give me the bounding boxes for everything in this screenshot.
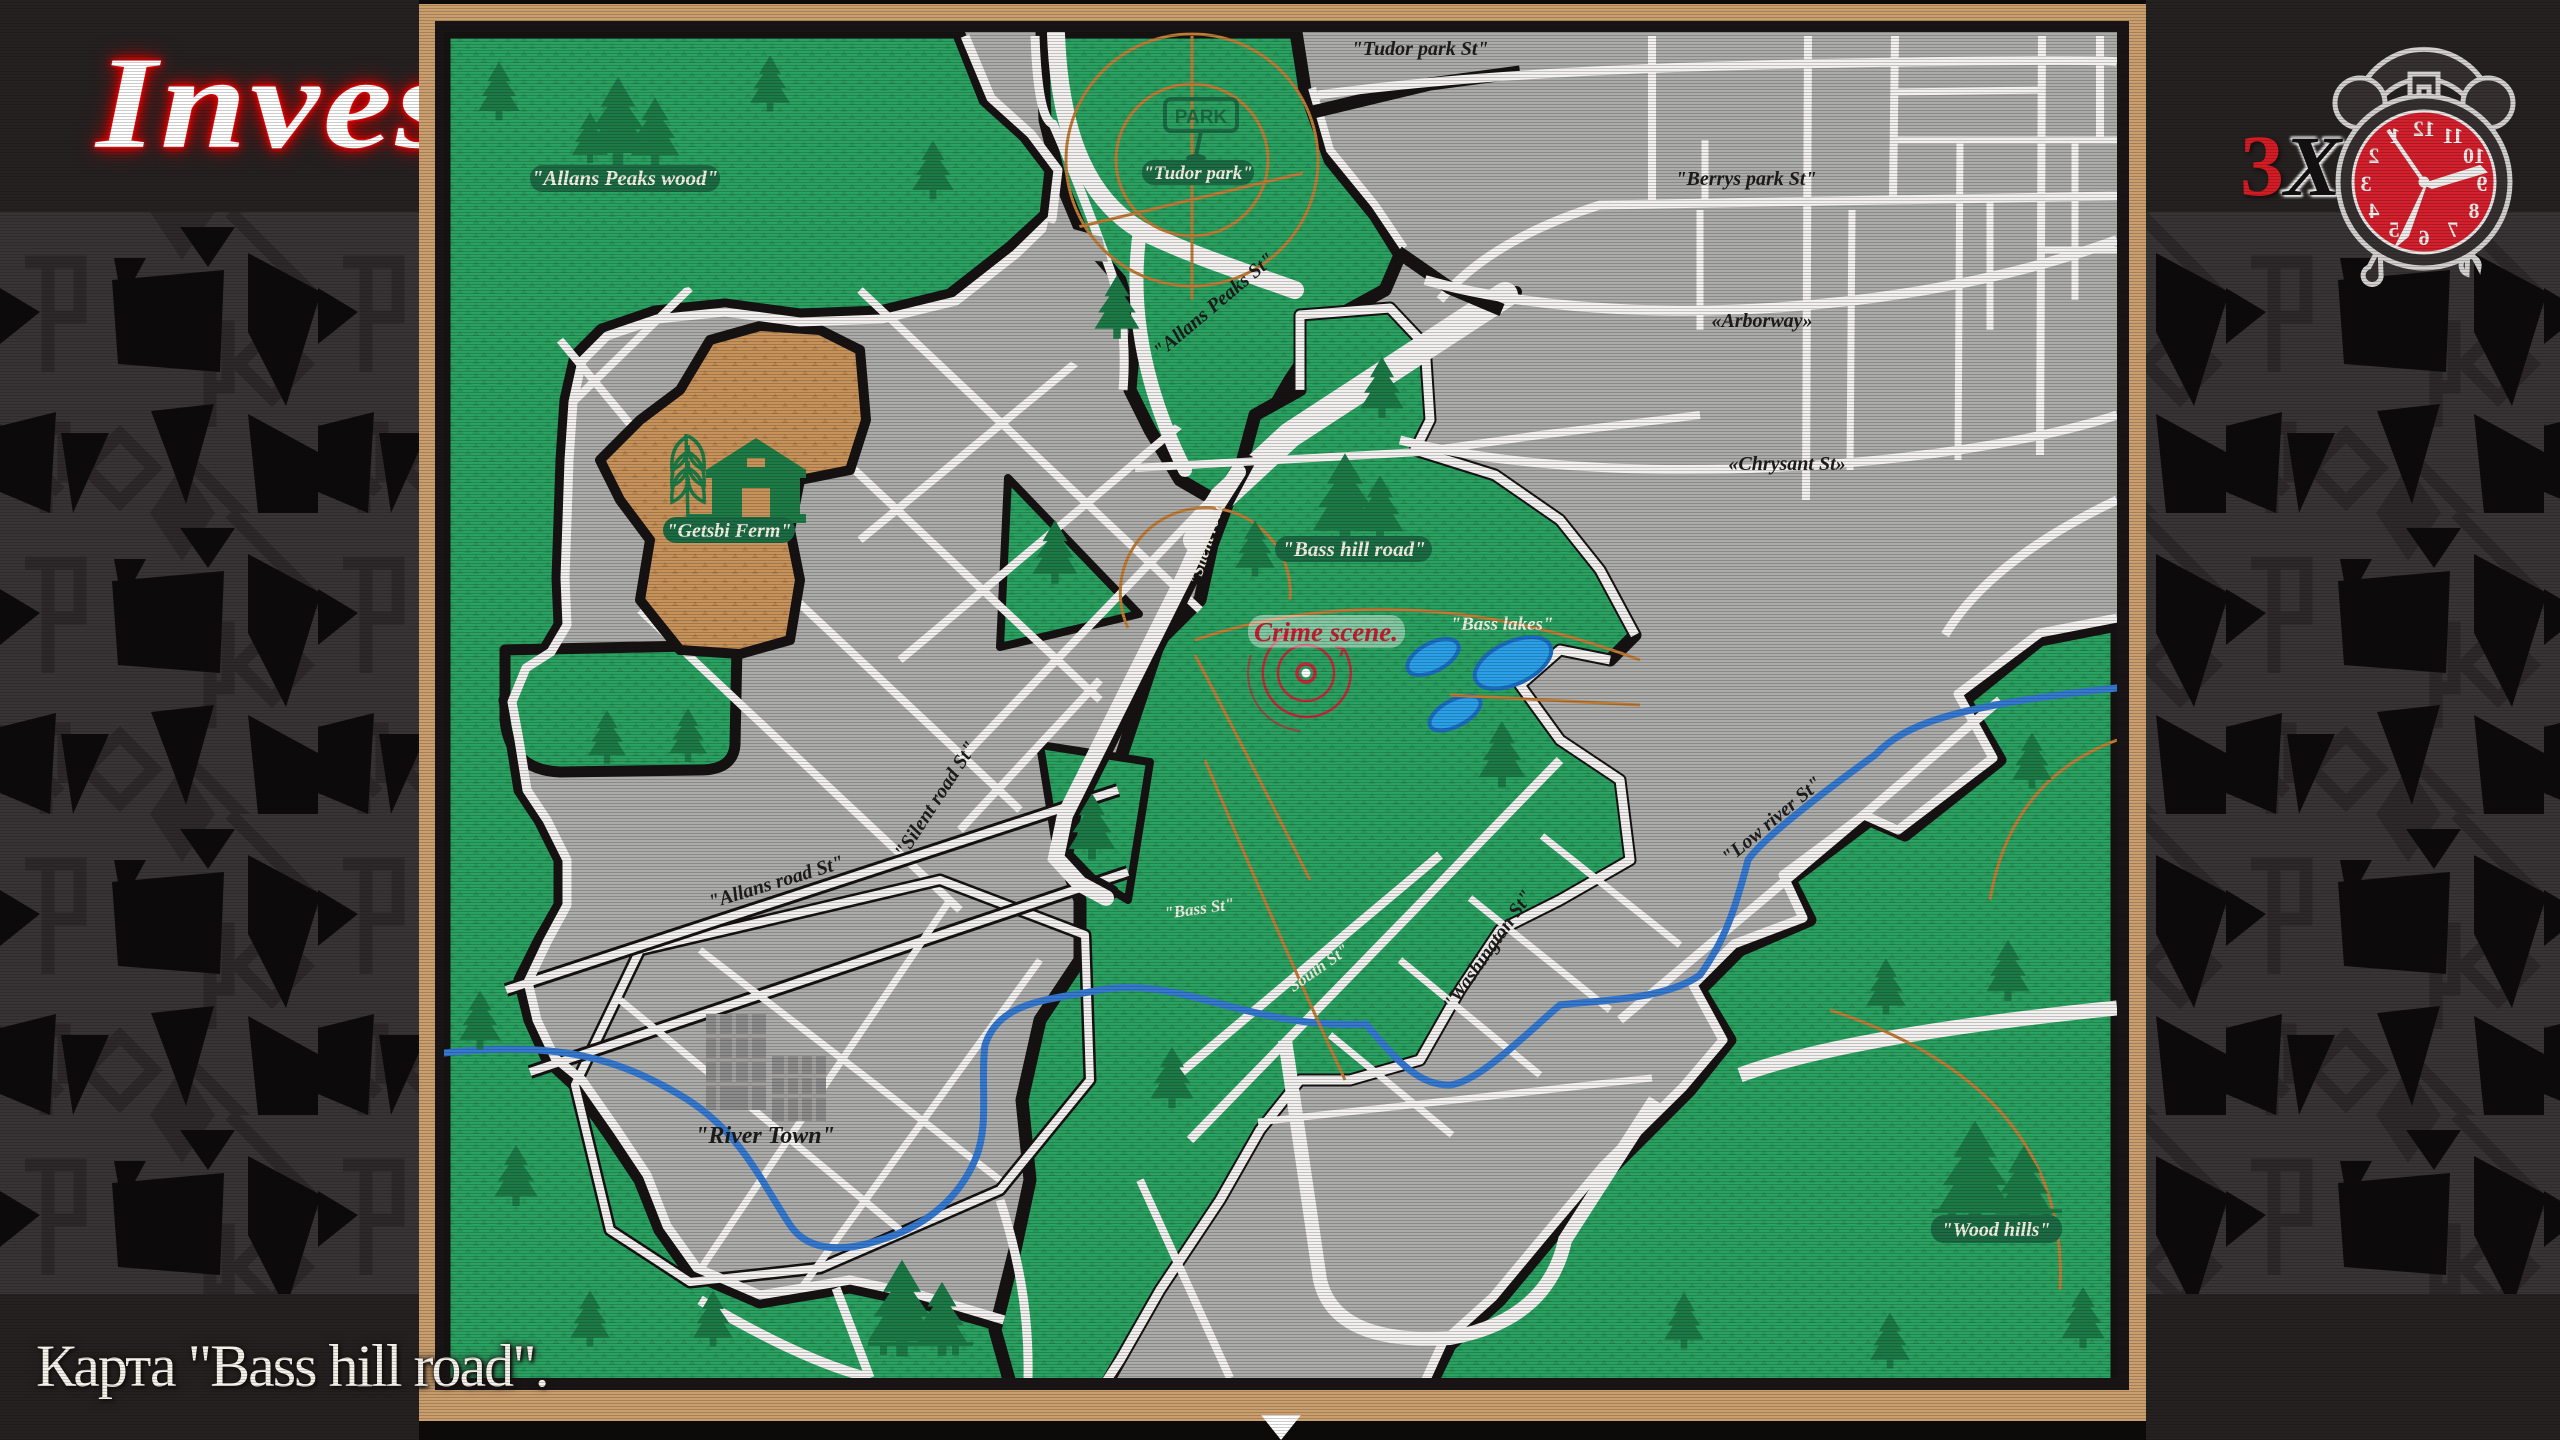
svg-text:"River Town": "River Town" <box>695 1123 835 1149</box>
svg-text:«Chrysant St»: «Chrysant St» <box>1728 453 1845 475</box>
svg-text:6: 6 <box>2419 225 2430 250</box>
svg-text:4: 4 <box>2369 198 2380 223</box>
svg-text:12: 12 <box>2413 116 2435 141</box>
svg-text:10: 10 <box>2463 143 2485 168</box>
svg-text:2: 2 <box>2369 143 2380 168</box>
svg-text:"Allans Peaks wood": "Allans Peaks wood" <box>532 166 719 190</box>
svg-text:11: 11 <box>2443 123 2464 148</box>
svg-text:"Bass hill road": "Bass hill road" <box>1282 537 1426 561</box>
svg-text:3: 3 <box>2361 171 2372 196</box>
svg-text:Crime scene.: Crime scene. <box>1254 617 1398 647</box>
svg-text:«Arborway»: «Arborway» <box>1711 310 1812 332</box>
svg-text:"Tudor park": "Tudor park" <box>1143 163 1253 184</box>
svg-text:7: 7 <box>2448 217 2459 242</box>
svg-text:"Wood hills": "Wood hills" <box>1941 1219 2050 1241</box>
svg-text:"Tudor park St": "Tudor park St" <box>1351 38 1488 60</box>
svg-text:"Berrys park St": "Berrys park St" <box>1675 168 1816 190</box>
svg-text:PARK: PARK <box>1175 107 1228 128</box>
svg-text:"Bass lakes": "Bass lakes" <box>1451 614 1554 635</box>
svg-text:5: 5 <box>2389 217 2400 242</box>
svg-text:8: 8 <box>2469 198 2480 223</box>
svg-text:"Getsbi Ferm": "Getsbi Ferm" <box>667 520 792 542</box>
